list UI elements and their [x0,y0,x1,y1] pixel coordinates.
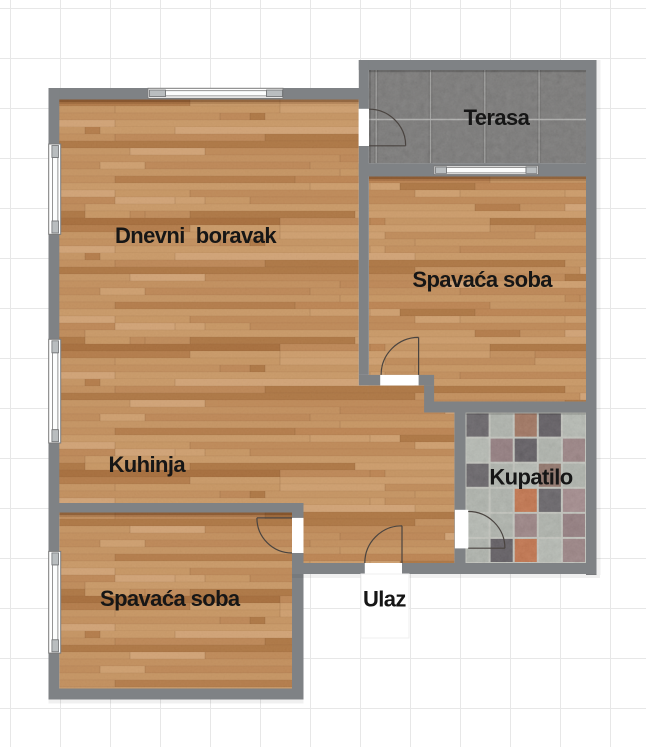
svg-text:Ulaz: Ulaz [363,586,406,611]
svg-text:Kupatilo: Kupatilo [489,464,572,489]
svg-text:Kuhinja: Kuhinja [109,452,187,477]
svg-text:Spavaća soba: Spavaća soba [100,586,241,611]
svg-text:Terasa: Terasa [464,105,531,130]
svg-text:Spavaća soba: Spavaća soba [412,267,553,292]
svg-text:Dnevni boravak: Dnevni boravak [115,223,277,248]
